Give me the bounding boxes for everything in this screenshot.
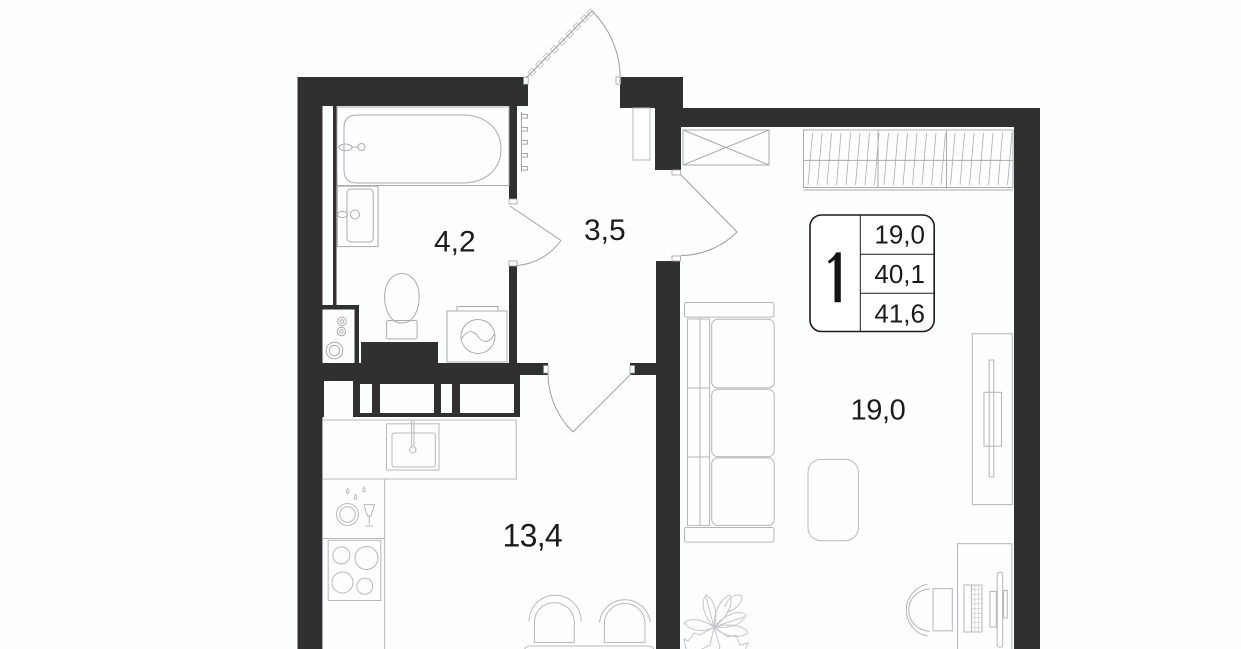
svg-text:19,0: 19,0 [874, 220, 925, 250]
svg-text:40,1: 40,1 [874, 259, 925, 289]
svg-text:4,2: 4,2 [434, 225, 476, 258]
svg-text:41,6: 41,6 [874, 299, 925, 329]
svg-text:13,4: 13,4 [503, 517, 562, 553]
svg-text:3,5: 3,5 [584, 214, 626, 247]
svg-text:19,0: 19,0 [851, 394, 906, 426]
